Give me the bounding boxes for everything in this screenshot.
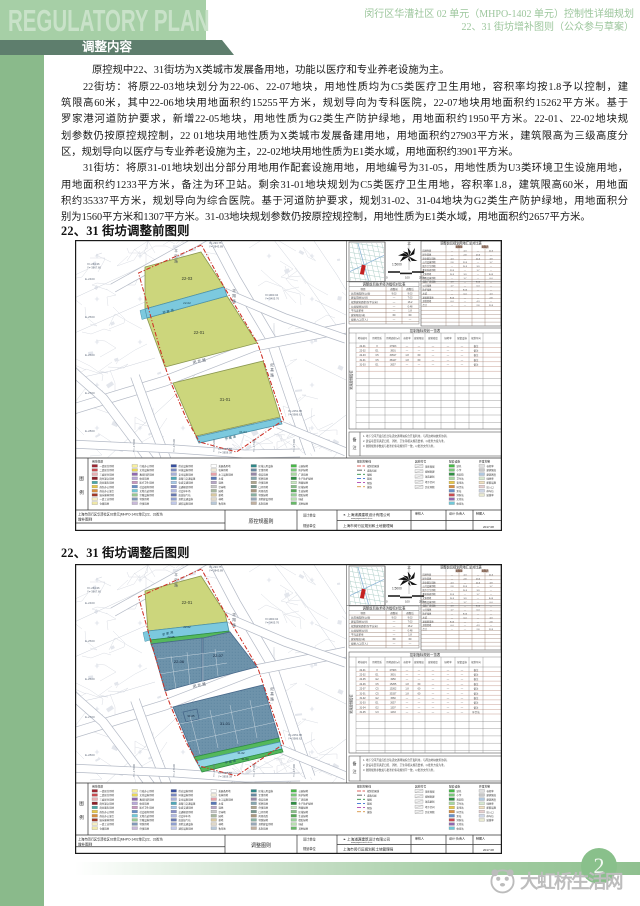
svg-text:平均容积率: 平均容积率 — [351, 309, 364, 313]
svg-text:E-2400: E-2400 — [85, 601, 95, 605]
svg-text:行政办公用地: 行政办公用地 — [140, 464, 155, 468]
svg-text:31-04: 31-04 — [359, 706, 366, 709]
svg-text:三类居住用地: 三类居住用地 — [100, 797, 115, 801]
svg-text:耕地: 耕地 — [219, 493, 224, 497]
svg-text:路: 路 — [232, 298, 236, 303]
svg-text:纪: 纪 — [270, 362, 274, 367]
svg-text:配套设施: 配套设施 — [457, 660, 467, 664]
svg-text:X=-264.36: X=-264.36 — [87, 262, 100, 266]
svg-text:建筑密度: 建筑密度 — [428, 336, 438, 340]
svg-text:出入口: 出入口 — [487, 810, 495, 814]
svg-text:设计·负责人: 设计·负责人 — [449, 836, 465, 841]
svg-text:一类居住用地: 一类居住用地 — [100, 464, 115, 468]
svg-text:供应设施用地: 供应设施用地 — [179, 464, 194, 468]
svg-text:容积率: 容积率 — [487, 464, 495, 468]
svg-text:通信设施用地: 通信设施用地 — [179, 501, 194, 505]
svg-text:制图人: 制图人 — [476, 836, 485, 841]
svg-text:高: 高 — [270, 367, 274, 372]
svg-text:农林用地: 农林用地 — [219, 793, 229, 797]
svg-text:娱乐康体用地: 娱乐康体用地 — [100, 818, 115, 822]
svg-text:道路与交通设施: 道路与交通设施 — [179, 801, 196, 805]
svg-text:Y=-3843.89: Y=-3843.89 — [209, 569, 223, 573]
svg-text:规划建筑面积(万平方米): 规划建筑面积(万平方米) — [351, 624, 378, 628]
svg-text:E-2500: E-2500 — [85, 639, 95, 643]
svg-text:改造更新: 改造更新 — [425, 475, 435, 479]
svg-text:绿道: 绿道 — [299, 822, 304, 826]
svg-text:二类居住用地: 二类居住用地 — [100, 468, 115, 472]
svg-text:乐: 乐 — [174, 253, 178, 258]
svg-text:地块控制指标: 地块控制指标 — [349, 694, 354, 714]
svg-text:注: 注 — [353, 768, 357, 774]
svg-text:绿线: 绿线 — [367, 798, 372, 802]
svg-text:9.03: 9.03 — [408, 616, 413, 619]
svg-text:特殊用地: 特殊用地 — [140, 497, 150, 501]
svg-text:绿线: 绿线 — [367, 473, 372, 477]
svg-text:备注: 备注 — [474, 344, 479, 348]
svg-text:黄线: 黄线 — [367, 485, 372, 489]
svg-text:1307: 1307 — [390, 706, 396, 709]
svg-text:黄线: 黄线 — [367, 810, 372, 814]
svg-text:备注: 备注 — [474, 363, 479, 367]
svg-text:加油加气站: 加油加气站 — [179, 818, 192, 822]
svg-text:紫线: 紫线 — [367, 481, 372, 485]
svg-text:环卫站: 环卫站 — [457, 810, 465, 814]
svg-text:X=1903.04: X=1903.04 — [265, 617, 279, 621]
svg-text:附属绿地: 附属绿地 — [299, 806, 309, 810]
svg-text:22-05: 22-05 — [167, 635, 175, 639]
svg-text:Y=-17400: Y=-17400 — [292, 439, 296, 452]
svg-text:养老院: 养老院 — [457, 797, 465, 801]
svg-text:一类工业用地: 一类工业用地 — [100, 822, 115, 826]
svg-text:防护绿地: 防护绿地 — [299, 468, 309, 472]
svg-text:消防站: 消防站 — [457, 818, 465, 822]
svg-text:停车位: 停车位 — [487, 814, 495, 818]
svg-text:泵站: 泵站 — [457, 489, 462, 493]
svg-text:规划新建: 规划新建 — [425, 795, 435, 799]
svg-text:3. 图则规划参数如与批准的专项规划不一致，以批准文件为准。: 3. 图则规划参数如与批准的专项规划不一致，以批准文件为准。 — [363, 444, 436, 448]
svg-text:其他交通设施: 其他交通设施 — [179, 822, 194, 826]
svg-text:交通枢纽用地: 交通枢纽用地 — [179, 485, 194, 489]
svg-text:备注: 备注 — [474, 691, 479, 695]
svg-text:上海市闵行区华漕社区02单元(MHPO-1402单元)22、: 上海市闵行区华漕社区02单元(MHPO-1402单元)22、31街坊 — [78, 837, 163, 842]
svg-text:用地面积(㎡): 用地面积(㎡) — [386, 660, 400, 664]
svg-text:E-2800: E-2800 — [85, 429, 95, 433]
svg-text:9.03: 9.03 — [408, 292, 413, 295]
svg-text:轨道交通用地: 轨道交通用地 — [179, 481, 194, 485]
svg-text:Y=-3843.89: Y=-3843.89 — [209, 245, 223, 249]
svg-text:地下空间: 地下空间 — [425, 805, 435, 809]
svg-text:规划范围线: 规划范围线 — [367, 789, 380, 793]
svg-text:1.8: 1.8 — [408, 310, 412, 313]
svg-text:路: 路 — [270, 696, 274, 701]
svg-text:22-02: 22-02 — [359, 350, 366, 353]
svg-text:开发控制: 开发控制 — [479, 460, 490, 464]
svg-text:增补图则: 增补图则 — [78, 842, 93, 847]
svg-text:牧草地: 牧草地 — [219, 826, 227, 830]
svg-text:31-05: 31-05 — [187, 714, 195, 718]
svg-text:农林用地: 农林用地 — [219, 468, 229, 472]
svg-text:二类居住用地: 二类居住用地 — [100, 793, 115, 797]
svg-text:地块控制指标: 地块控制指标 — [349, 370, 354, 390]
svg-text:三类居住用地: 三类居住用地 — [100, 472, 115, 476]
svg-text:生产防护绿地: 生产防护绿地 — [299, 476, 314, 480]
svg-text:园地: 园地 — [219, 814, 224, 818]
svg-text:建筑密度: 建筑密度 — [428, 660, 438, 664]
svg-text:空闲地: 空闲地 — [219, 810, 227, 814]
svg-text:广场用地: 广场用地 — [299, 472, 309, 476]
svg-text:22-03: 22-03 — [359, 354, 366, 357]
svg-text:区域绿地: 区域绿地 — [299, 485, 309, 489]
svg-text:其他建设用地: 其他建设用地 — [259, 822, 274, 826]
svg-text:7.03: 7.03 — [408, 621, 413, 624]
svg-text:E-2500: E-2500 — [85, 315, 95, 319]
svg-text:原控规图则: 原控规图则 — [248, 518, 273, 525]
svg-text:规划人口(万人): 规划人口(万人) — [351, 641, 368, 645]
svg-text:规划导向: 规划导向 — [471, 660, 481, 664]
svg-text:Y=-3867.60: Y=-3867.60 — [87, 590, 101, 594]
svg-text:绿地率: 绿地率 — [487, 476, 495, 480]
svg-text:增补图则: 增补图则 — [78, 517, 93, 522]
svg-text:X=-3355.50: X=-3355.50 — [218, 447, 232, 451]
svg-text:商住混合用地: 商住混合用地 — [100, 801, 115, 805]
svg-text:Y=-17000: Y=-17000 — [132, 439, 136, 452]
svg-text:Y=-17300: Y=-17300 — [252, 764, 256, 777]
svg-text:现状保留: 现状保留 — [425, 464, 435, 468]
svg-text:上海市闵行区规划和土地管理局: 上海市闵行区规划和土地管理局 — [343, 523, 394, 528]
svg-text:高: 高 — [270, 691, 274, 696]
svg-text:1.8: 1.8 — [408, 634, 412, 637]
svg-text:0.48: 0.48 — [408, 629, 413, 632]
svg-text:配套设施: 配套设施 — [449, 460, 460, 464]
svg-text:防护绿地: 防护绿地 — [299, 793, 309, 797]
svg-text:2. 建设项目须满足日照、消防、卫生等相关规范要求，以批准方: 2. 建设项目须满足日照、消防、卫生等相关规范要求，以批准方案为准。 — [363, 763, 446, 767]
svg-text:华: 华 — [232, 288, 236, 293]
svg-text:文化设施用地: 文化设施用地 — [140, 468, 155, 472]
svg-text:地块编号: 地块编号 — [358, 336, 368, 340]
svg-text:2017.08: 2017.08 — [483, 848, 494, 852]
svg-text:外事用地: 外事用地 — [140, 826, 150, 830]
svg-text:22-01: 22-01 — [359, 669, 366, 672]
svg-text:上海市闵行区华漕社区02单元(MHPO-1402单元)22、: 上海市闵行区华漕社区02单元(MHPO-1402单元)22、31街坊 — [78, 512, 163, 517]
svg-text:其他绿地: 其他绿地 — [299, 501, 309, 505]
svg-text:备注: 备注 — [474, 701, 479, 705]
svg-text:备注: 备注 — [474, 682, 479, 686]
svg-text:通信设施用地: 通信设施用地 — [179, 826, 194, 830]
svg-text:卫生站: 卫生站 — [457, 476, 465, 480]
svg-text:行政办公用地: 行政办公用地 — [140, 789, 155, 793]
svg-text:保安用地: 保安用地 — [259, 472, 269, 476]
svg-text:绿地率: 绿地率 — [444, 336, 452, 340]
svg-text:31-01: 31-01 — [359, 359, 366, 362]
svg-text:2017.08: 2017.08 — [483, 525, 494, 529]
svg-text:制图人: 制图人 — [476, 511, 485, 516]
svg-text:31-01: 31-01 — [359, 692, 366, 695]
svg-text:体育站: 体育站 — [457, 501, 465, 505]
svg-text:0.48: 0.48 — [408, 305, 413, 308]
svg-text:水工设施用地: 水工设施用地 — [219, 472, 234, 476]
svg-text:2. 建设项目须满足日照、消防、卫生等相关规范要求，以批准方: 2. 建设项目须满足日照、消防、卫生等相关规范要求，以批准方案为准。 — [363, 439, 446, 443]
svg-text:文化设施用地: 文化设施用地 — [140, 793, 155, 797]
svg-text:31-03: 31-03 — [239, 430, 247, 434]
svg-text:殡葬用地: 殡葬用地 — [259, 476, 269, 480]
svg-text:蓝线: 蓝线 — [367, 477, 372, 481]
svg-text:调整后: 调整后 — [406, 287, 414, 291]
svg-text:30517: 30517 — [390, 354, 397, 357]
svg-text:商业服务用地: 商业服务用地 — [100, 806, 115, 810]
svg-text:控制指标规划一览表: 控制指标规划一览表 — [410, 328, 441, 333]
svg-text:规划导向: 规划导向 — [471, 336, 481, 340]
svg-text:总用地面积(公顷): 总用地面积(公顷) — [351, 615, 370, 619]
svg-text:仓储用地: 仓储用地 — [100, 826, 110, 830]
svg-text:15255: 15255 — [390, 683, 397, 686]
svg-text:31-05: 31-05 — [359, 711, 366, 714]
svg-text:Y=-17200: Y=-17200 — [212, 764, 216, 777]
svg-text:22-01: 22-01 — [182, 600, 193, 605]
svg-text:建筑密度: 建筑密度 — [487, 797, 497, 801]
svg-text:公园绿地: 公园绿地 — [299, 789, 309, 793]
svg-text:平均容积率: 平均容积率 — [351, 633, 364, 637]
svg-text:特殊用地: 特殊用地 — [140, 822, 150, 826]
svg-text:调整前: 调整前 — [390, 287, 398, 291]
svg-text:1. 地下空间开发应结合轨道交通场站综合开发利用，与周边地块: 1. 地下空间开发应结合轨道交通场站综合开发利用，与周边地块统筹协调。 — [363, 758, 449, 762]
svg-text:规划建筑面积(万平方米): 规划建筑面积(万平方米) — [351, 300, 378, 304]
svg-text:31-03: 31-03 — [359, 702, 366, 705]
svg-text:容积率: 容积率 — [487, 789, 495, 793]
svg-text:商业服务用地: 商业服务用地 — [100, 481, 115, 485]
svg-text:外事用地: 外事用地 — [259, 806, 269, 810]
svg-text:商务办公用地: 商务办公用地 — [100, 485, 115, 489]
svg-text:100: 100 — [405, 276, 410, 280]
svg-text:楔形绿地: 楔形绿地 — [299, 493, 309, 497]
svg-text:道路与交通设施: 道路与交通设施 — [179, 476, 196, 480]
svg-text:设计单位: 设计单位 — [303, 512, 317, 517]
svg-text:项目: 项目 — [360, 287, 366, 291]
svg-text:❧ 上海浦源建筑设计有限公司: ❧ 上海浦源建筑设计有限公司 — [343, 836, 391, 841]
svg-text:安全设施用地: 安全设施用地 — [179, 797, 194, 801]
svg-text:一类工业用地: 一类工业用地 — [100, 497, 115, 501]
svg-text:环卫站: 环卫站 — [472, 710, 480, 714]
svg-text:宗教设施用地: 宗教设施用地 — [140, 493, 155, 497]
svg-text:16.2: 16.2 — [408, 301, 413, 304]
svg-text:商务办公用地: 商务办公用地 — [100, 810, 115, 814]
svg-text:X=1903.04: X=1903.04 — [265, 293, 279, 297]
svg-text:环境设施用地: 环境设施用地 — [179, 468, 194, 472]
svg-text:发展备用地: 发展备用地 — [219, 789, 232, 793]
svg-text:容积率: 容积率 — [403, 660, 411, 664]
svg-text:幼托: 幼托 — [457, 789, 462, 793]
svg-text:历史风貌: 历史风貌 — [425, 810, 435, 814]
svg-text:其他交通设施: 其他交通设施 — [179, 497, 194, 501]
svg-text:Y=-17000: Y=-17000 — [132, 764, 136, 777]
svg-text:调整前后技术经济指标对比表: 调整前后技术经济指标对比表 — [363, 606, 407, 611]
svg-text:社会停车场: 社会停车场 — [179, 814, 192, 818]
svg-text:22-02: 22-02 — [183, 301, 191, 305]
svg-text:路: 路 — [232, 622, 236, 627]
svg-text:备注: 备注 — [474, 668, 479, 672]
svg-text:1:5000: 1:5000 — [392, 587, 402, 591]
svg-text:X=-293.75: X=-293.75 — [209, 241, 222, 245]
svg-text:备注: 备注 — [474, 687, 479, 691]
svg-text:开发控制: 开发控制 — [479, 785, 490, 789]
svg-text:教育科研用地: 教育科研用地 — [140, 797, 155, 801]
svg-text:军事用地: 军事用地 — [259, 468, 269, 472]
svg-text:体育用地: 体育用地 — [140, 476, 150, 480]
svg-text:安全设施用地: 安全设施用地 — [179, 472, 194, 476]
svg-text:1560: 1560 — [390, 697, 396, 700]
svg-text:E-2400: E-2400 — [85, 277, 95, 281]
svg-text:生产防护绿地: 生产防护绿地 — [299, 801, 314, 805]
svg-text:湿地: 湿地 — [219, 806, 224, 810]
svg-text:泵站: 泵站 — [457, 814, 462, 818]
svg-text:未利用地: 未利用地 — [259, 501, 269, 505]
svg-text:商业办公混合: 商业办公混合 — [100, 489, 115, 493]
svg-text:控制指标规划一览表: 控制指标规划一览表 — [410, 652, 441, 657]
svg-text:1233: 1233 — [390, 711, 396, 714]
svg-text:体育站: 体育站 — [457, 826, 465, 830]
svg-text:建设用地(公顷): 建设用地(公顷) — [351, 296, 368, 300]
svg-text:备注: 备注 — [474, 677, 479, 681]
svg-text:建筑密度: 建筑密度 — [487, 472, 497, 476]
svg-text:建筑限高: 建筑限高 — [487, 793, 497, 797]
svg-text:22-07: 22-07 — [359, 688, 366, 691]
svg-text:文化站: 文化站 — [457, 497, 465, 501]
svg-text:配套设施: 配套设施 — [487, 806, 497, 810]
svg-text:22-06: 22-06 — [359, 683, 366, 686]
svg-text:变电站: 变电站 — [457, 806, 465, 810]
svg-text:31-01: 31-01 — [220, 721, 231, 726]
svg-text:Y=-3858.38: Y=-3858.38 — [218, 451, 232, 455]
svg-text:医疗卫生用地: 医疗卫生用地 — [140, 806, 155, 810]
svg-text:备注: 备注 — [474, 349, 479, 353]
svg-text:商业办公混合: 商业办公混合 — [100, 814, 115, 818]
svg-text:出入口: 出入口 — [487, 485, 495, 489]
svg-text:消防站: 消防站 — [457, 493, 465, 497]
svg-text:现状保留: 现状保留 — [425, 789, 435, 793]
svg-text:调整前后技术经济指标对比表: 调整前后技术经济指标对比表 — [363, 282, 407, 287]
svg-text:16.2: 16.2 — [408, 625, 413, 628]
svg-text:口岸用地: 口岸用地 — [259, 485, 269, 489]
svg-text:Y=-17300: Y=-17300 — [252, 439, 256, 452]
svg-text:环卫站: 环卫站 — [457, 485, 465, 489]
svg-text:22-02: 22-02 — [183, 625, 191, 629]
svg-text:附属绿地: 附属绿地 — [299, 481, 309, 485]
svg-text:其他绿地: 其他绿地 — [299, 826, 309, 830]
svg-text:建筑限高: 建筑限高 — [487, 468, 497, 472]
svg-text:设计单位: 设计单位 — [303, 837, 317, 842]
svg-text:翔: 翔 — [232, 617, 236, 622]
svg-text:教育科研用地: 教育科研用地 — [140, 472, 155, 476]
svg-text:历史风貌: 历史风貌 — [425, 485, 435, 489]
svg-text:1:5000: 1:5000 — [392, 263, 402, 267]
svg-text:X=-293.75: X=-293.75 — [209, 565, 222, 569]
svg-text:平: 平 — [174, 249, 178, 253]
svg-text:31-03: 31-03 — [359, 364, 366, 367]
svg-text:社会停车场: 社会停车场 — [179, 489, 192, 493]
svg-text:建筑限高: 建筑限高 — [414, 336, 424, 340]
svg-text:X=-3355.50: X=-3355.50 — [218, 771, 232, 775]
svg-text:仓储用地: 仓储用地 — [100, 501, 110, 505]
svg-text:轨道交通用地: 轨道交通用地 — [179, 806, 194, 810]
svg-text:备注: 备注 — [474, 696, 479, 700]
svg-text:用地性质: 用地性质 — [92, 785, 103, 789]
svg-text:容积率: 容积率 — [403, 336, 411, 340]
svg-text:发展备用地: 发展备用地 — [219, 464, 232, 468]
svg-text:备注: 备注 — [474, 353, 479, 357]
svg-text:华: 华 — [232, 612, 236, 617]
svg-text:规划范围线: 规划范围线 — [367, 464, 380, 468]
svg-text:改造更新: 改造更新 — [425, 800, 435, 804]
svg-text:建筑限高(米): 建筑限高(米) — [351, 313, 365, 317]
svg-text:娱乐康体用地: 娱乐康体用地 — [100, 493, 115, 497]
svg-text:100: 100 — [405, 600, 410, 604]
svg-text:X=-264.36: X=-264.36 — [87, 586, 100, 590]
svg-text:保安用地: 保安用地 — [259, 797, 269, 801]
svg-text:1. 地下空间开发应结合轨道交通场站综合开发利用，与周边地块: 1. 地下空间开发应结合轨道交通场站综合开发利用，与周边地块统筹协调。 — [363, 434, 449, 438]
svg-text:3901: 3901 — [390, 674, 396, 677]
svg-text:社会福利用地: 社会福利用地 — [140, 485, 155, 489]
svg-text:其他建设用地: 其他建设用地 — [259, 497, 274, 501]
svg-text:养老院: 养老院 — [457, 472, 465, 476]
svg-text:空闲地: 空闲地 — [219, 485, 227, 489]
svg-text:宗教设施用地: 宗教设施用地 — [140, 818, 155, 822]
svg-text:公园绿地: 公园绿地 — [299, 464, 309, 468]
svg-text:上海市闵行区规划和土地管理局: 上海市闵行区规划和土地管理局 — [343, 847, 394, 852]
svg-text:生态绿地: 生态绿地 — [299, 814, 309, 818]
svg-text:贴线率: 贴线率 — [487, 493, 495, 497]
svg-text:特殊绿地: 特殊绿地 — [259, 493, 269, 497]
svg-text:医疗卫生用地: 医疗卫生用地 — [140, 481, 155, 485]
svg-text:贴线率: 贴线率 — [487, 818, 495, 822]
svg-text:供应设施用地: 供应设施用地 — [179, 789, 194, 793]
svg-text:Y=-17100: Y=-17100 — [172, 764, 176, 777]
svg-text:规划单位: 规划单位 — [303, 523, 317, 528]
svg-text:31-01: 31-01 — [220, 397, 231, 402]
svg-text:文物古迹用地: 文物古迹用地 — [140, 489, 155, 493]
svg-text:22-01: 22-01 — [359, 345, 366, 348]
svg-text:38127: 38127 — [390, 359, 397, 362]
svg-text:27903: 27903 — [390, 345, 397, 348]
svg-text:公共绿地(公顷): 公共绿地(公顷) — [351, 628, 368, 632]
svg-text:www.puyuan-arch.sh.cn: www.puyuan-arch.sh.cn — [351, 842, 372, 844]
svg-text:路: 路 — [174, 582, 178, 587]
svg-text:外事用地: 外事用地 — [259, 481, 269, 485]
svg-text:地下空间: 地下空间 — [425, 480, 435, 484]
svg-text:水域: 水域 — [219, 801, 224, 805]
svg-text:特殊绿地: 特殊绿地 — [259, 818, 269, 822]
svg-text:绿地率: 绿地率 — [487, 801, 495, 805]
svg-text:22-02: 22-02 — [359, 674, 366, 677]
svg-text:2657: 2657 — [390, 364, 396, 367]
svg-text:平: 平 — [174, 573, 178, 577]
svg-text:22-05: 22-05 — [359, 678, 366, 681]
svg-text:区域绿地: 区域绿地 — [299, 810, 309, 814]
svg-text:其他符号: 其他符号 — [415, 460, 426, 464]
svg-text:E-2700: E-2700 — [85, 715, 95, 719]
svg-text:调整图则: 调整图则 — [251, 842, 271, 849]
svg-text:园地: 园地 — [219, 489, 224, 493]
svg-text:规划人口(万人): 规划人口(万人) — [351, 317, 368, 321]
svg-text:规划单位: 规划单位 — [303, 846, 317, 851]
svg-text:总用地面积(公顷): 总用地面积(公顷) — [351, 291, 370, 295]
svg-text:22-06: 22-06 — [174, 659, 185, 664]
svg-text:规划新建: 规划新建 — [425, 470, 435, 474]
svg-text:Y=-3405.76: Y=-3405.76 — [265, 297, 279, 301]
svg-text:E-2800: E-2800 — [85, 753, 95, 757]
svg-text:Y=-17400: Y=-17400 — [292, 764, 296, 777]
svg-text:风景名胜: 风景名胜 — [259, 814, 269, 818]
svg-text:9.03: 9.03 — [392, 616, 397, 619]
svg-text:22-07: 22-07 — [213, 653, 224, 658]
